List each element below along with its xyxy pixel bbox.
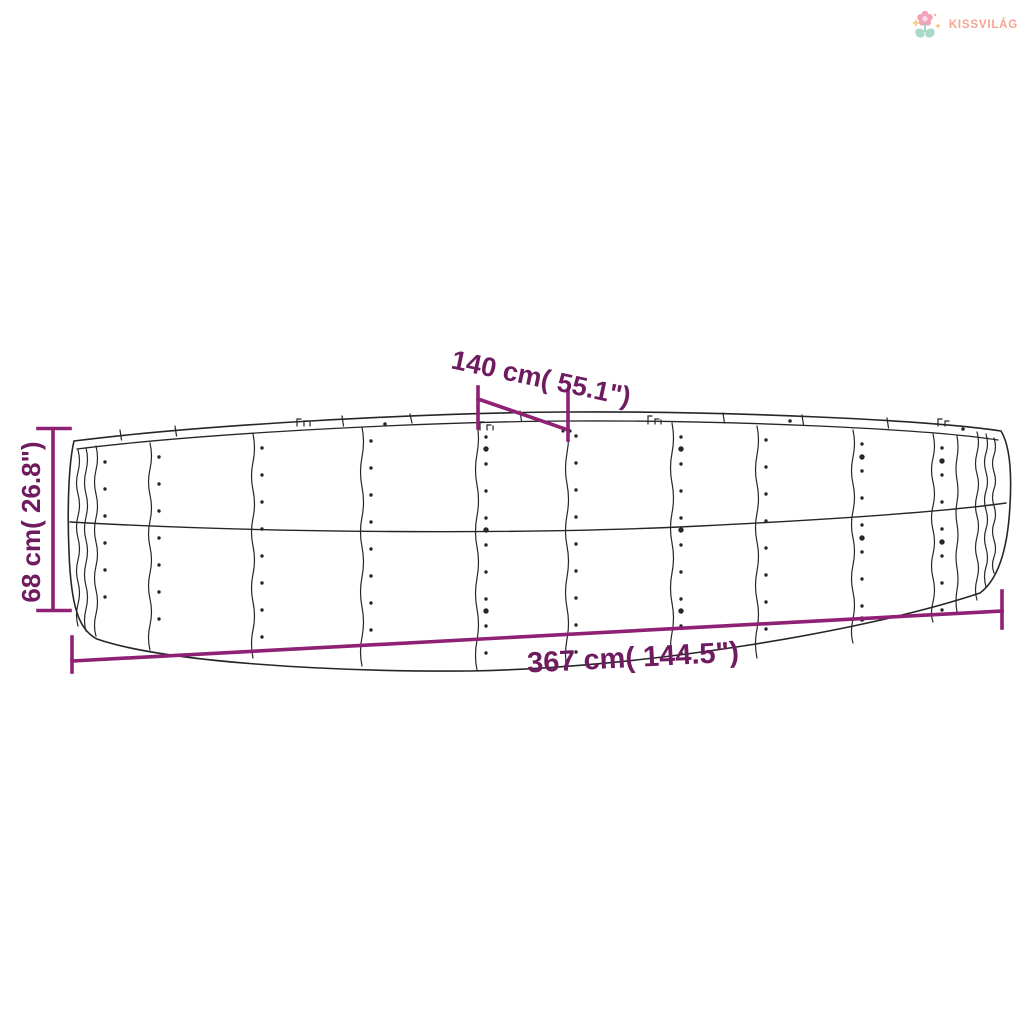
garden-bed-diagram	[0, 0, 1024, 1024]
flower-center	[922, 16, 927, 21]
garden-bed-drawing	[68, 411, 1010, 671]
dimension-label-height: 68 cm( 26.8")	[16, 432, 46, 612]
brand-logo: KISSVILÁG	[912, 10, 1018, 40]
brand-name: KISSVILÁG	[949, 19, 1018, 31]
flower-icon	[912, 10, 944, 40]
left-corrugation	[77, 446, 98, 636]
bed-middle-seam	[70, 503, 1006, 532]
width-dim-line	[478, 399, 568, 430]
bed-rim-inner-line	[77, 421, 998, 449]
bed-outline	[68, 412, 1010, 671]
product-dimension-image: 140 cm( 55.1") 68 cm( 26.8") 367 cm( 144…	[0, 0, 1024, 1024]
rivet-dots	[105, 436, 942, 660]
rivet-blobs	[486, 449, 942, 660]
right-corrugation	[956, 432, 996, 612]
